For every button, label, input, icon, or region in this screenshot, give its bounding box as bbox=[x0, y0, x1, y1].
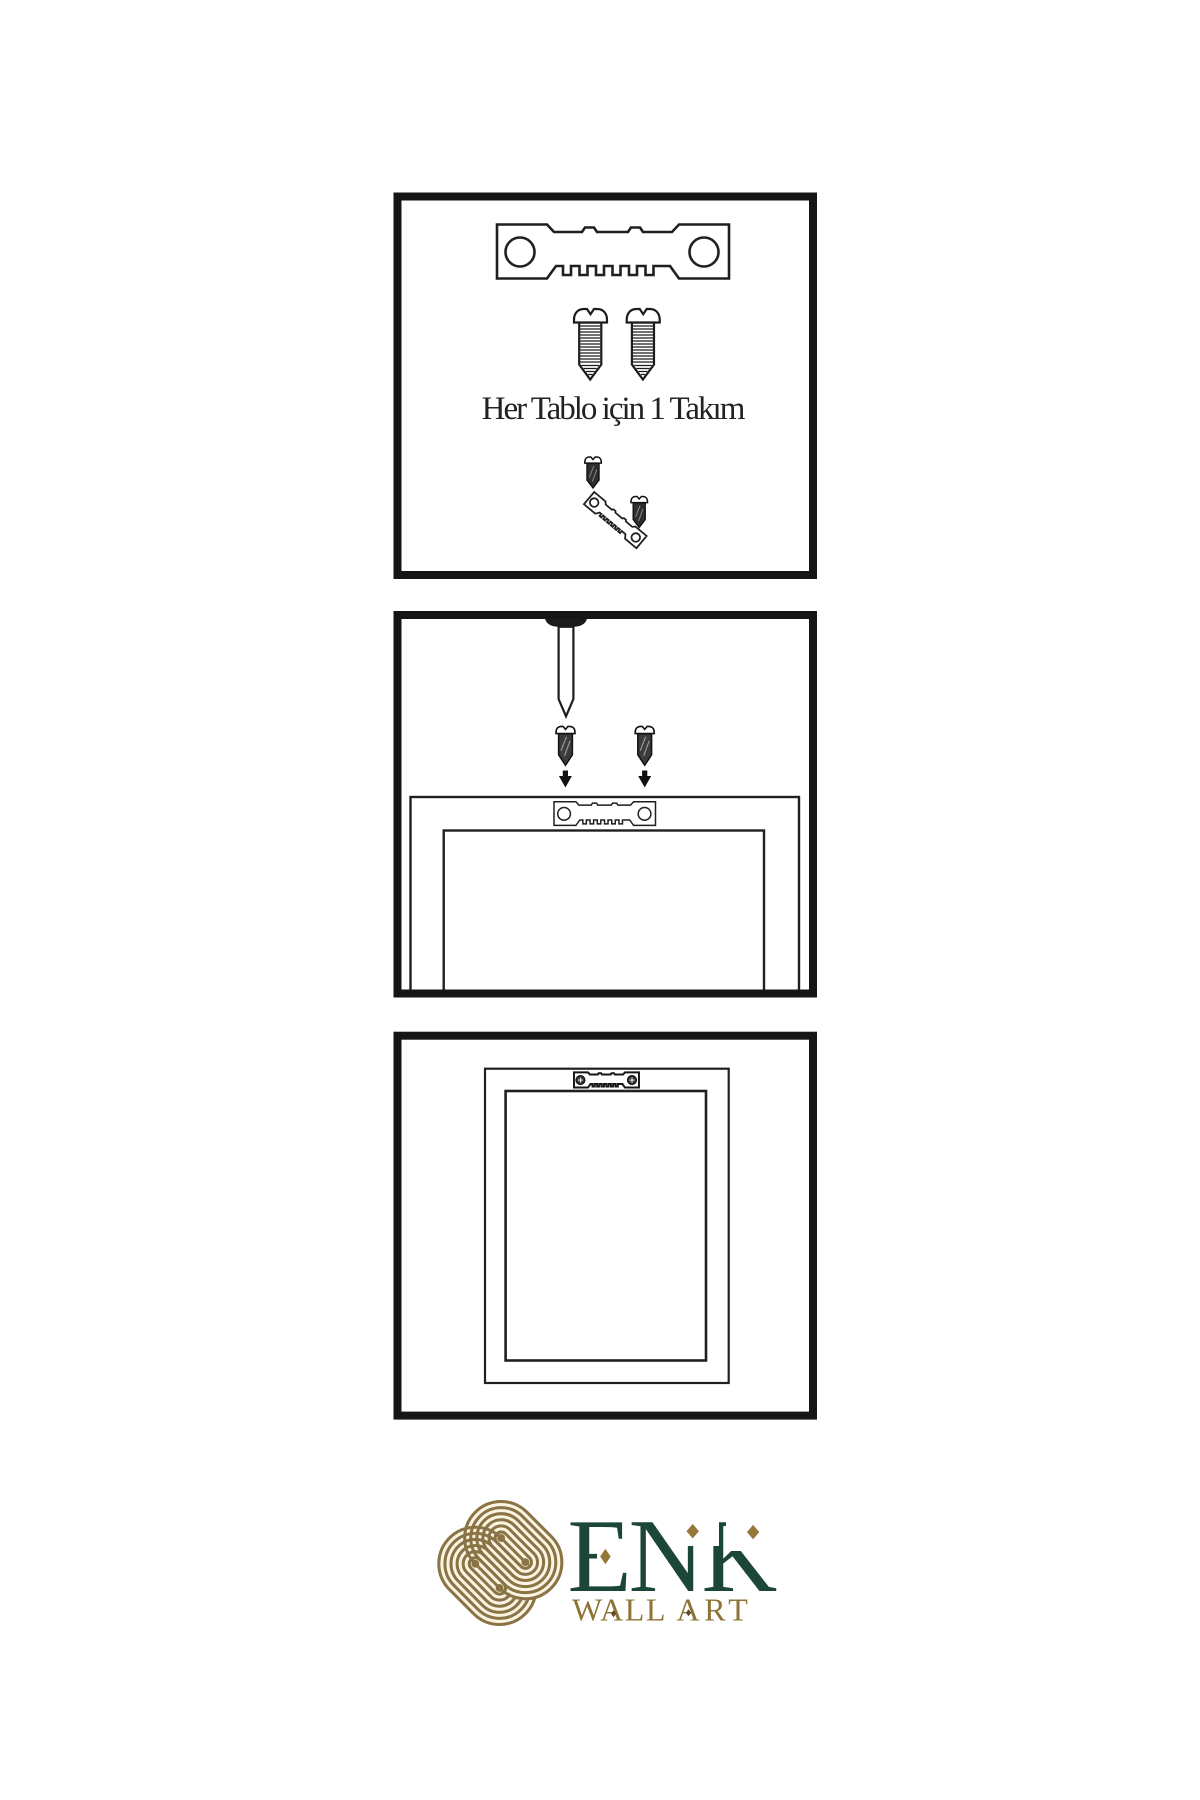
svg-text:ART: ART bbox=[677, 1592, 753, 1628]
svg-text:WALL: WALL bbox=[572, 1592, 667, 1628]
svg-text:Her Tablo için 1 Takım: Her Tablo için 1 Takım bbox=[482, 391, 746, 427]
